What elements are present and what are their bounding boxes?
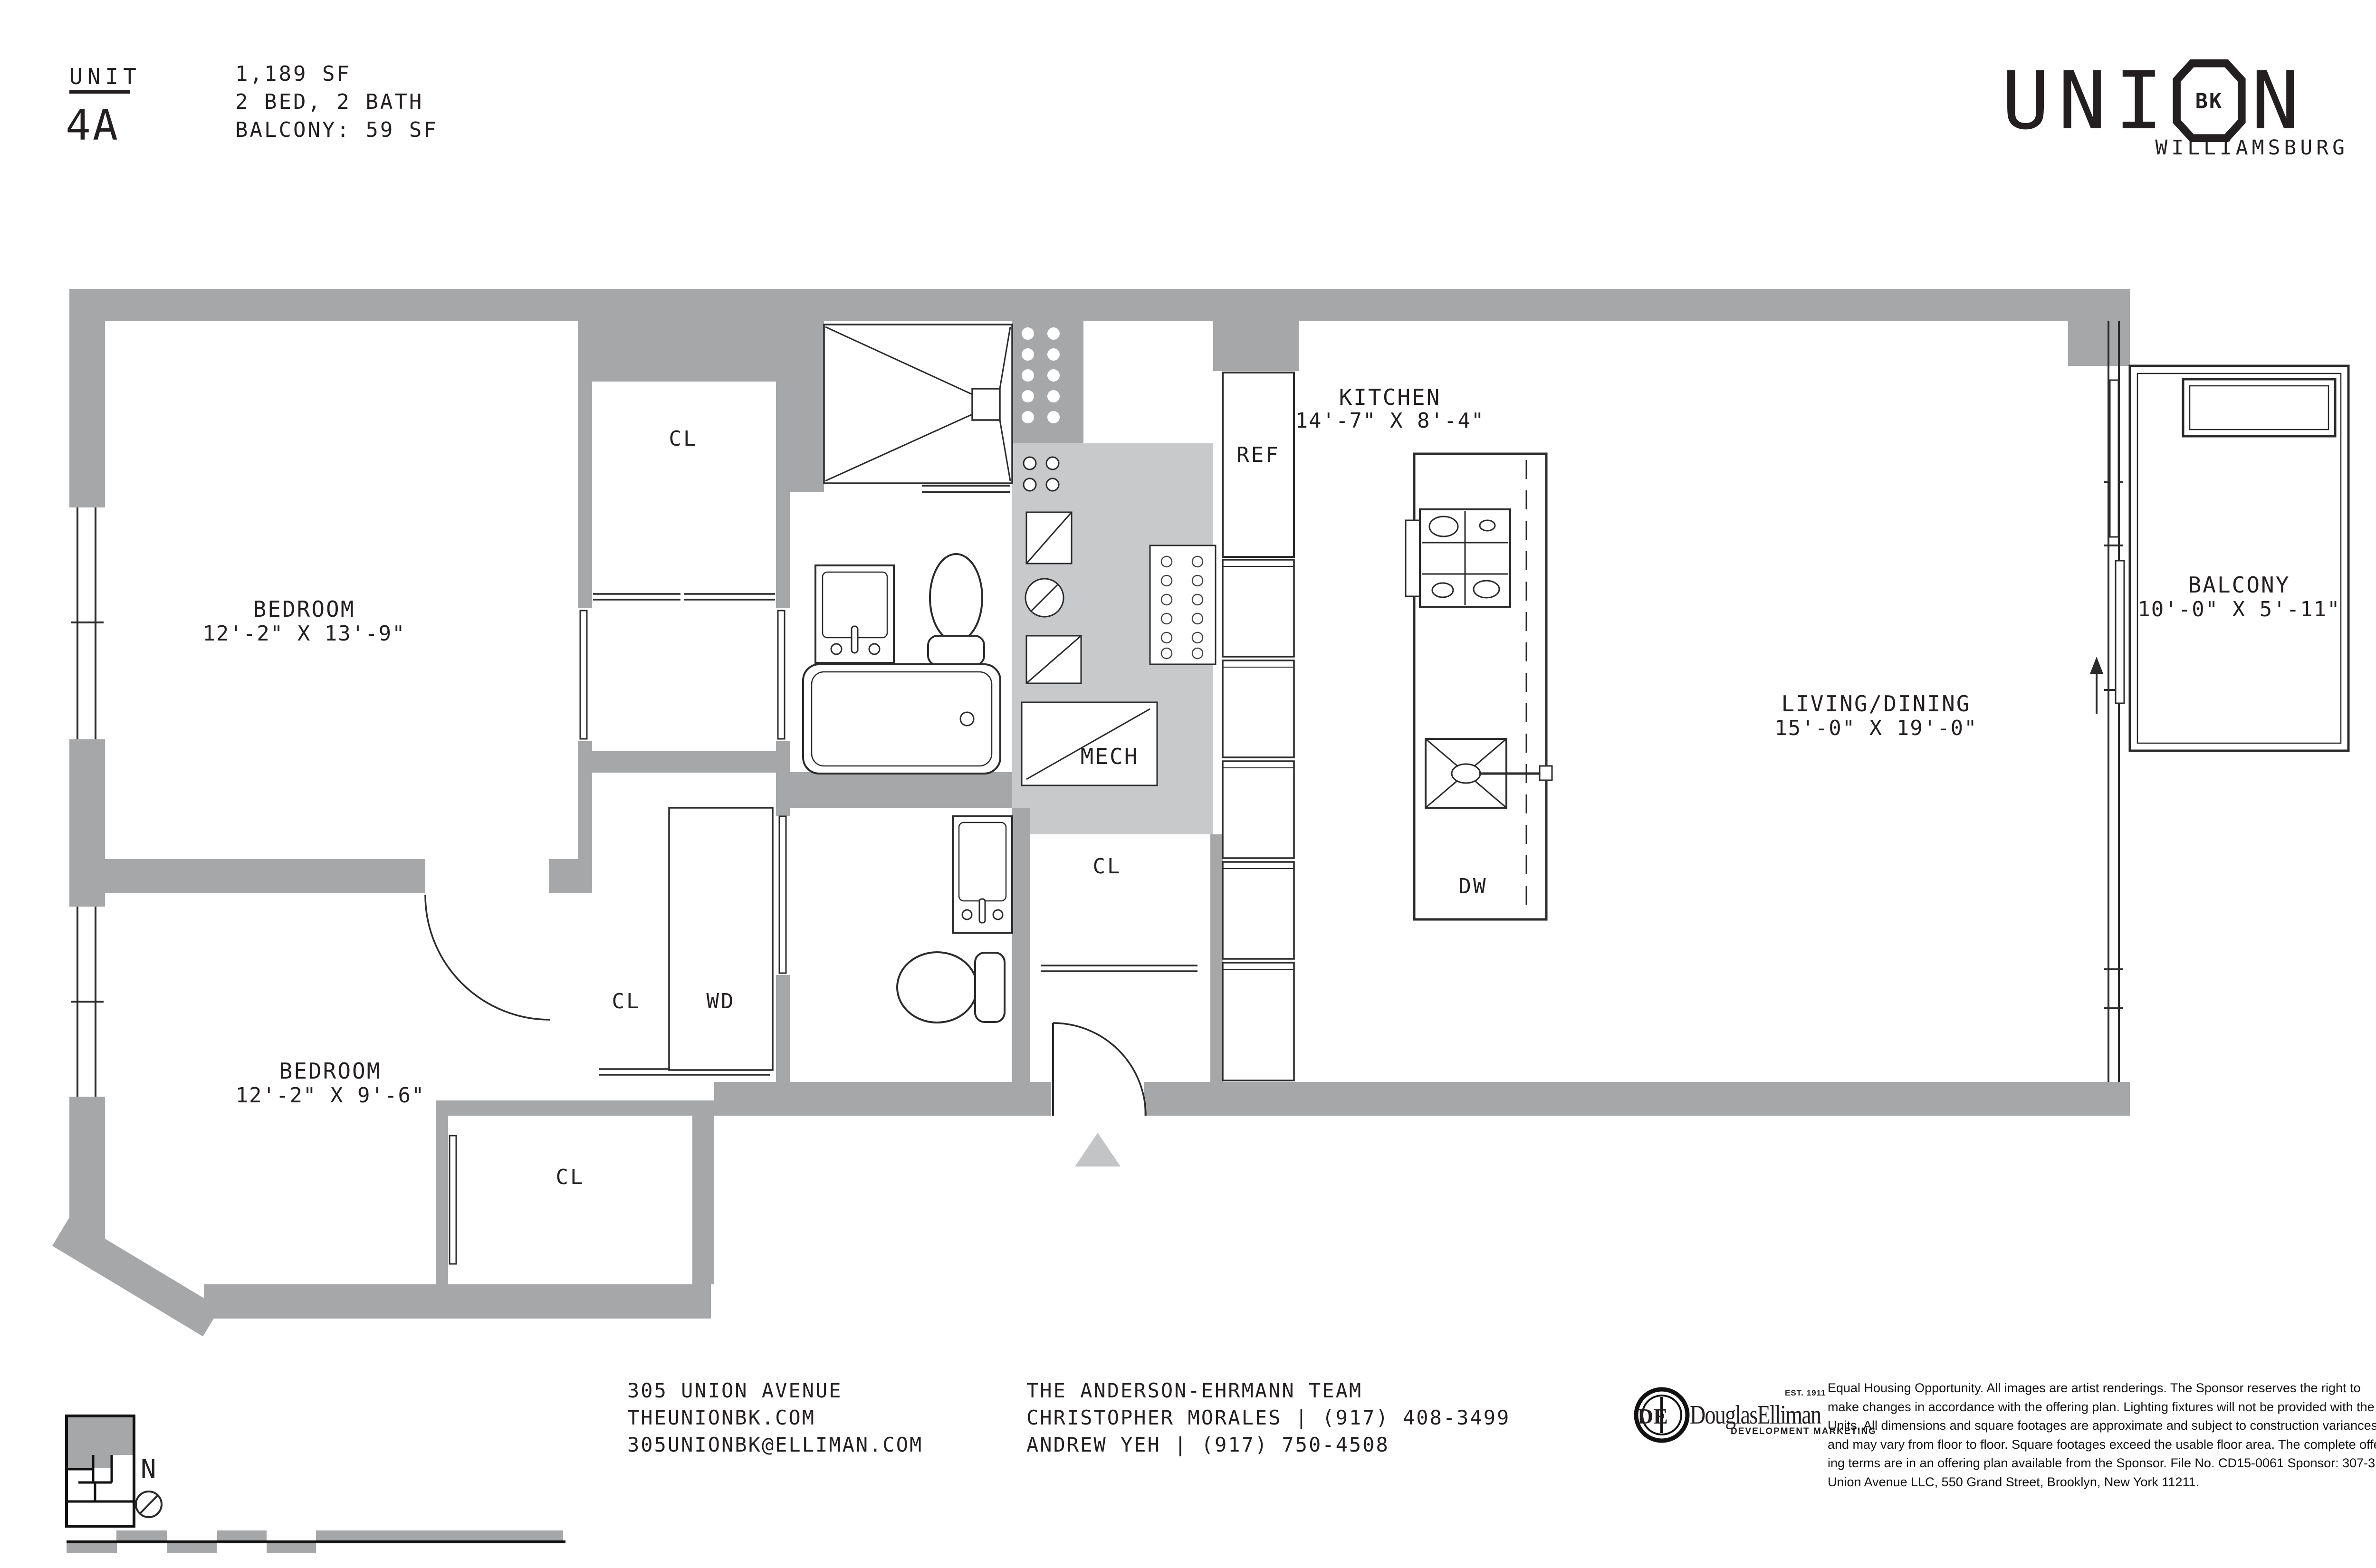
closet-label: CL xyxy=(669,427,698,451)
legal-line: and may vary from floor to floor. Square… xyxy=(1828,1437,2376,1452)
key-plan xyxy=(67,1416,134,1526)
living-dining-dims: 15'-0" X 19'-0" xyxy=(1774,716,1977,740)
shower-fixture xyxy=(824,325,1012,492)
bathtub-fixture xyxy=(803,664,1000,774)
address-line: 305 UNION AVENUE xyxy=(627,1379,843,1402)
living-dining-label: LIVING/DINING xyxy=(1781,691,1971,717)
legal-line: Units. All dimensions and square footage… xyxy=(1828,1418,2376,1433)
toilet-fixture xyxy=(928,554,984,665)
balcony-outline xyxy=(2130,366,2348,751)
legal-line: Equal Housing Opportunity. All images ar… xyxy=(1828,1381,2361,1395)
douglas-elliman-est: EST. 1911 xyxy=(1785,1388,1826,1398)
entry-door-arc xyxy=(1053,1023,1146,1116)
wall xyxy=(69,289,105,507)
closet-label: CL xyxy=(612,989,641,1013)
wall xyxy=(776,975,790,1082)
wall xyxy=(776,492,790,608)
washer-dryer-label: WD xyxy=(707,989,736,1013)
footer-address: 305 UNION AVENUETHEUNIONBK.COM305UNIONBK… xyxy=(627,1377,923,1458)
balcony-door-arrow-icon xyxy=(2090,657,2103,714)
wall xyxy=(69,739,105,907)
floor-plan: BEDROOM 12'-2" X 13'-9" BEDROOM 12'-2" X… xyxy=(0,0,2376,1568)
entry-arrow-icon xyxy=(1075,1133,1121,1166)
wall xyxy=(578,289,824,382)
kitchen-tall-units xyxy=(1223,373,1294,1080)
wall xyxy=(436,1100,714,1116)
floorplan-page: { "header": { "unit_label": "UNIT", "uni… xyxy=(0,0,2376,1568)
legal-line: ing terms are in an offering plan availa… xyxy=(1828,1456,2376,1470)
email-link[interactable]: 305UNIONBK@ELLIMAN.COM xyxy=(627,1433,923,1456)
wall xyxy=(1210,834,1223,1082)
wall xyxy=(1012,321,1083,443)
stove-fixture xyxy=(1406,509,1510,607)
toilet-fixture xyxy=(897,952,1005,1023)
kitchen-label: KITCHEN xyxy=(1339,384,1441,410)
wall xyxy=(69,289,2130,321)
website-link[interactable]: THEUNIONBK.COM xyxy=(627,1406,815,1429)
legal-line: Union Avenue LLC, 550 Grand Street, Broo… xyxy=(1828,1475,2199,1489)
bedroom1-label: BEDROOM xyxy=(253,596,355,622)
cabinet xyxy=(1223,560,1294,657)
team-name: THE ANDERSON-EHRMANN TEAM xyxy=(1026,1379,1362,1402)
refrigerator-label: REF xyxy=(1236,443,1280,467)
wall xyxy=(549,859,578,893)
wall xyxy=(1213,289,1299,371)
wall xyxy=(776,741,790,816)
cabinet xyxy=(1223,761,1294,858)
balcony-dims: 10'-0" X 5'-11" xyxy=(2137,597,2340,621)
wall xyxy=(714,1082,1051,1116)
kitchen-dims: 14'-7" X 8'-4" xyxy=(1295,409,1485,433)
north-indicator: N xyxy=(136,1454,162,1517)
legal-line: make changes in accordance with the offe… xyxy=(1828,1400,2375,1414)
wall xyxy=(1144,1082,2130,1116)
door-arc xyxy=(425,895,550,1020)
mech-label: MECH xyxy=(1081,744,1139,769)
douglas-elliman-wordmark: DouglasElliman xyxy=(1690,1400,1820,1430)
douglas-elliman-monogram-icon: DE xyxy=(1636,1389,1687,1441)
closet-label: CL xyxy=(1093,854,1122,879)
sink-fixture xyxy=(953,816,1012,933)
cabinet xyxy=(1223,862,1294,959)
wall xyxy=(52,1217,220,1337)
bedroom2-dims: 12'-2" X 9'-6" xyxy=(236,1083,425,1108)
balcony-label: BALCONY xyxy=(2188,572,2290,598)
closet-label: CL xyxy=(556,1165,585,1189)
dishwasher-label: DW xyxy=(1459,874,1488,899)
wall xyxy=(1012,808,1030,1082)
north-label: N xyxy=(141,1454,156,1484)
scale-bar xyxy=(67,1530,565,1553)
balcony-slider-door xyxy=(2110,380,2124,703)
wall xyxy=(2068,289,2130,366)
agent-contact: ANDREW YEH | (917) 750-4508 xyxy=(1026,1433,1389,1456)
monogram-text: DE xyxy=(1638,1404,1668,1428)
wall xyxy=(578,321,592,608)
footer-team: THE ANDERSON-EHRMANN TEAMCHRISTOPHER MOR… xyxy=(1026,1377,1510,1458)
washer-dryer-box xyxy=(669,808,773,1070)
bedroom2-label: BEDROOM xyxy=(279,1058,382,1084)
cabinet xyxy=(1223,660,1294,757)
agent-contact: CHRISTOPHER MORALES | (917) 408-3499 xyxy=(1026,1406,1510,1429)
wall xyxy=(578,751,776,773)
bedroom1-dims: 12'-2" X 13'-9" xyxy=(202,621,405,646)
wall xyxy=(790,772,1012,808)
sink-fixture xyxy=(815,565,894,663)
kitchen-island xyxy=(1406,454,1552,919)
wall xyxy=(776,382,824,492)
legal-disclaimer: Equal Housing Opportunity. All images ar… xyxy=(1828,1379,2376,1492)
wall xyxy=(436,1116,448,1284)
cabinet xyxy=(1223,963,1294,1080)
wall xyxy=(105,859,425,893)
wall xyxy=(204,1284,711,1319)
wall xyxy=(692,1116,714,1284)
